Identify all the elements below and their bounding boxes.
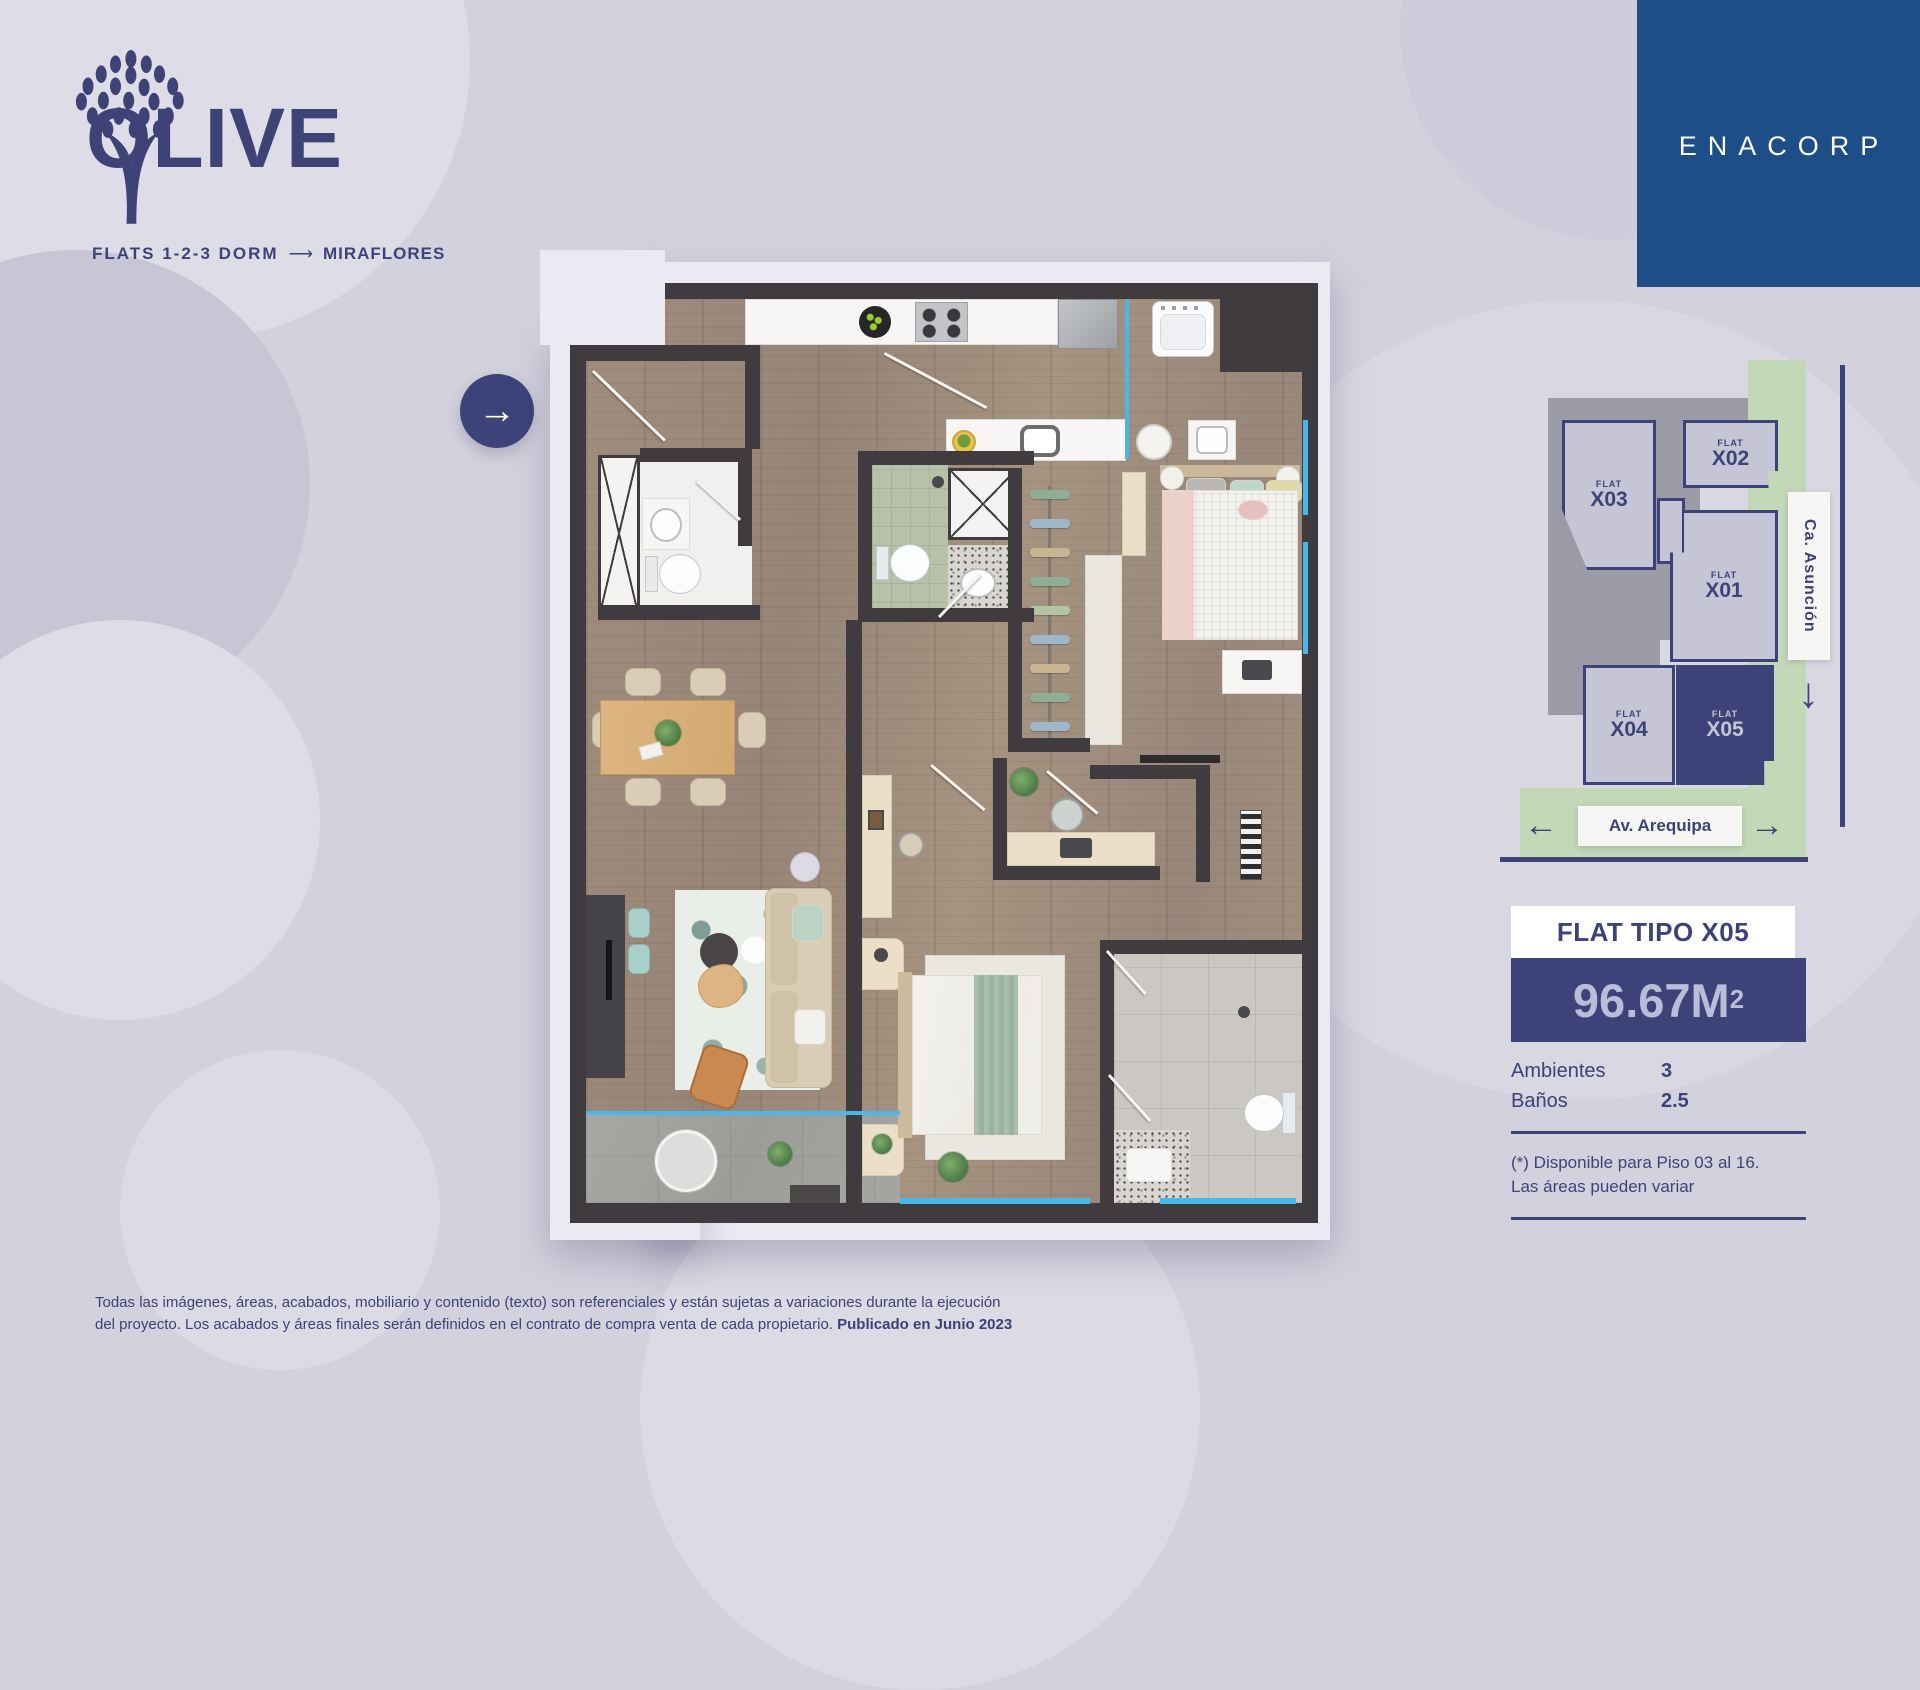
plant-icon <box>1010 768 1038 796</box>
right-arrow-icon: → <box>1750 808 1784 842</box>
wall <box>570 345 586 1203</box>
right-arrow-icon: → <box>478 390 516 433</box>
tagline-location: MIRAFLORES <box>323 244 445 263</box>
entry-arrow-button[interactable]: → <box>460 374 534 448</box>
left-arrow-icon: ← <box>1524 808 1558 842</box>
site-map: FLAT X03 FLAT X02 FLAT X01 FLAT X04 FLAT… <box>1500 350 1920 890</box>
info-row-ambientes: Ambientes3 <box>1511 1060 1806 1083</box>
round-art-table-icon <box>790 852 820 882</box>
sitemap-flat-x05[interactable]: FLAT X05 <box>1676 665 1774 785</box>
terrace-mat <box>790 1185 840 1203</box>
dining-chair-icon <box>690 778 726 806</box>
brand-tagline: FLATS 1-2-3 DORM⟶MIRAFLORES <box>92 244 445 264</box>
street-line-vertical <box>1840 365 1845 827</box>
wall <box>846 620 862 1203</box>
plan-step-mask <box>540 250 665 345</box>
wall <box>1090 765 1210 779</box>
clothes-hanger-icon <box>1030 722 1070 731</box>
legal-disclaimer: Todas las imágenes, áreas, acabados, mob… <box>95 1292 1255 1336</box>
plant-icon <box>872 1134 892 1154</box>
bath-toilet-icon <box>890 544 930 582</box>
divider <box>1511 1217 1806 1220</box>
terrace-window-glass <box>586 1111 900 1115</box>
dining-chair-icon <box>625 668 661 696</box>
street-label-vertical: Ca. Asunción <box>1788 492 1830 660</box>
pillow-icon <box>1238 500 1268 520</box>
wall <box>570 345 760 361</box>
street-line-horizontal <box>1500 857 1808 862</box>
wall <box>745 361 760 449</box>
clothes-hanger-icon <box>1030 490 1070 499</box>
console-frame-icon <box>868 810 884 830</box>
wall <box>1220 299 1302 372</box>
pink-throw <box>1162 490 1194 640</box>
sitemap-flat-x04[interactable]: FLAT X04 <box>1583 665 1675 785</box>
striped-bench <box>1240 810 1262 880</box>
tv-icon <box>1140 755 1220 763</box>
enacorp-banner: ENACORP <box>1637 0 1920 287</box>
availability-note2: Las áreas pueden variar <box>1511 1177 1811 1197</box>
dining-chair-icon <box>690 668 726 696</box>
cutting-board-icon <box>859 306 891 338</box>
divider <box>1511 1131 1806 1134</box>
study-console <box>862 775 892 918</box>
floor-plan <box>540 250 1340 1245</box>
unit-area: 96.67M2 <box>1511 958 1806 1042</box>
laundry-basin-icon <box>1196 426 1228 454</box>
masterbath-toilet-icon <box>1244 1094 1284 1132</box>
clothes-hanger-icon <box>1030 519 1070 528</box>
entry-closet-icon <box>598 455 640 612</box>
info-row-banos: Baños2.5 <box>1511 1090 1806 1113</box>
masterbath-sink-counter <box>1126 1148 1172 1182</box>
wall <box>1100 940 1114 1203</box>
plant-icon <box>938 1152 968 1182</box>
powder-sink-icon <box>650 508 682 542</box>
stove-icon <box>915 302 968 342</box>
wall <box>1196 779 1210 882</box>
wall <box>993 758 1007 880</box>
wall <box>858 465 872 622</box>
clothes-hanger-icon <box>1030 548 1070 557</box>
wall <box>1008 468 1022 752</box>
laptop-icon <box>1060 838 1092 858</box>
terrace-chair-icon <box>655 1130 717 1192</box>
plant-icon <box>768 1142 792 1166</box>
bath-vanity-sink-icon <box>960 568 996 598</box>
window <box>900 1198 1090 1204</box>
wall <box>1100 940 1302 954</box>
bed-throw <box>974 975 1018 1135</box>
pouf-icon <box>628 944 650 974</box>
clothes-hanger-icon <box>1030 664 1070 673</box>
master-headboard <box>898 972 912 1138</box>
powder-toilet-tank <box>645 556 658 592</box>
fridge-icon <box>1058 299 1118 349</box>
shower-head-icon <box>932 476 944 488</box>
sofa <box>765 888 832 1088</box>
wall <box>665 283 1318 299</box>
round-table-icon <box>1136 424 1172 460</box>
masterbath-toilet-tank <box>1282 1092 1296 1134</box>
wall <box>858 451 1034 465</box>
dining-chair-icon <box>625 778 661 806</box>
glass-partition <box>1125 299 1129 459</box>
kitchen-counter <box>745 299 1058 345</box>
window <box>1303 542 1308 654</box>
down-arrow-icon: ↓ <box>1798 672 1819 714</box>
bedroom2-dresser <box>1122 472 1146 556</box>
lamp-icon <box>874 948 888 962</box>
window <box>1303 420 1308 515</box>
bedroom2-runner-rug <box>1085 555 1122 745</box>
shower-drain-icon <box>1238 1006 1250 1018</box>
wall <box>640 448 752 462</box>
wall <box>598 605 760 620</box>
olive-tree-icon <box>70 50 194 226</box>
dining-chair-icon <box>738 712 766 748</box>
pet-bowl-icon <box>1050 798 1084 832</box>
wall <box>1022 738 1090 752</box>
enacorp-logo-text: ENACORP <box>1637 131 1920 162</box>
unit-title: FLAT TIPO X05 <box>1511 906 1795 958</box>
tv-icon <box>606 940 612 1000</box>
window <box>1160 1198 1296 1204</box>
sitemap-flat-x02[interactable]: FLAT X02 <box>1683 420 1778 488</box>
availability-note: (*) Disponible para Piso 03 al 16. <box>1511 1153 1811 1173</box>
round-pillow-icon <box>1160 466 1184 490</box>
pouf-icon <box>628 908 650 938</box>
clothes-hanger-icon <box>1030 577 1070 586</box>
powder-toilet-icon <box>659 554 701 594</box>
sitemap-flat-x01[interactable]: FLAT X01 <box>1670 510 1778 662</box>
publish-date: Publicado en Junio 2023 <box>837 1316 1012 1333</box>
clothes-hanger-icon <box>1030 693 1070 702</box>
clothes-hanger-icon <box>1030 606 1070 615</box>
side-table-icon <box>698 964 744 1008</box>
laptop-icon <box>1242 660 1272 680</box>
bg-circle <box>0 620 320 1020</box>
street-label-horizontal: Av. Arequipa <box>1578 806 1742 846</box>
tagline-left: FLATS 1-2-3 DORM <box>92 244 279 263</box>
wall <box>1007 866 1160 880</box>
wall <box>570 1203 1318 1223</box>
clothes-hanger-icon <box>1030 635 1070 644</box>
bath-toilet-tank <box>876 546 889 580</box>
wall <box>738 460 752 546</box>
tagline-arrow-icon: ⟶ <box>279 244 323 263</box>
stool-icon <box>898 832 924 858</box>
washer-icon <box>1152 301 1214 357</box>
